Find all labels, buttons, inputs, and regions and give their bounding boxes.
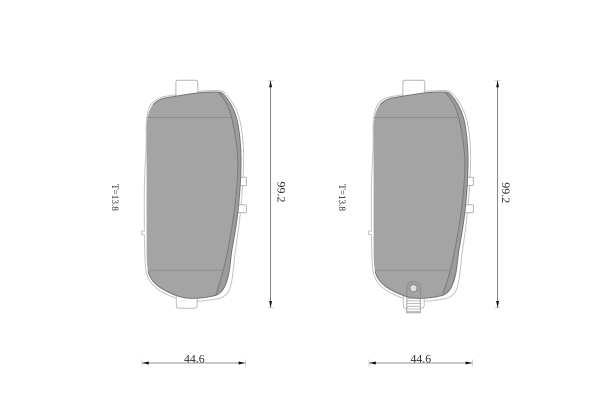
svg-text:44.6: 44.6: [184, 352, 205, 366]
svg-text:44.6: 44.6: [410, 352, 431, 366]
svg-text:T=13.8: T=13.8: [337, 184, 347, 211]
svg-text:99.2: 99.2: [499, 182, 513, 203]
svg-text:T=13.8: T=13.8: [110, 184, 120, 211]
svg-text:99.2: 99.2: [274, 182, 288, 203]
